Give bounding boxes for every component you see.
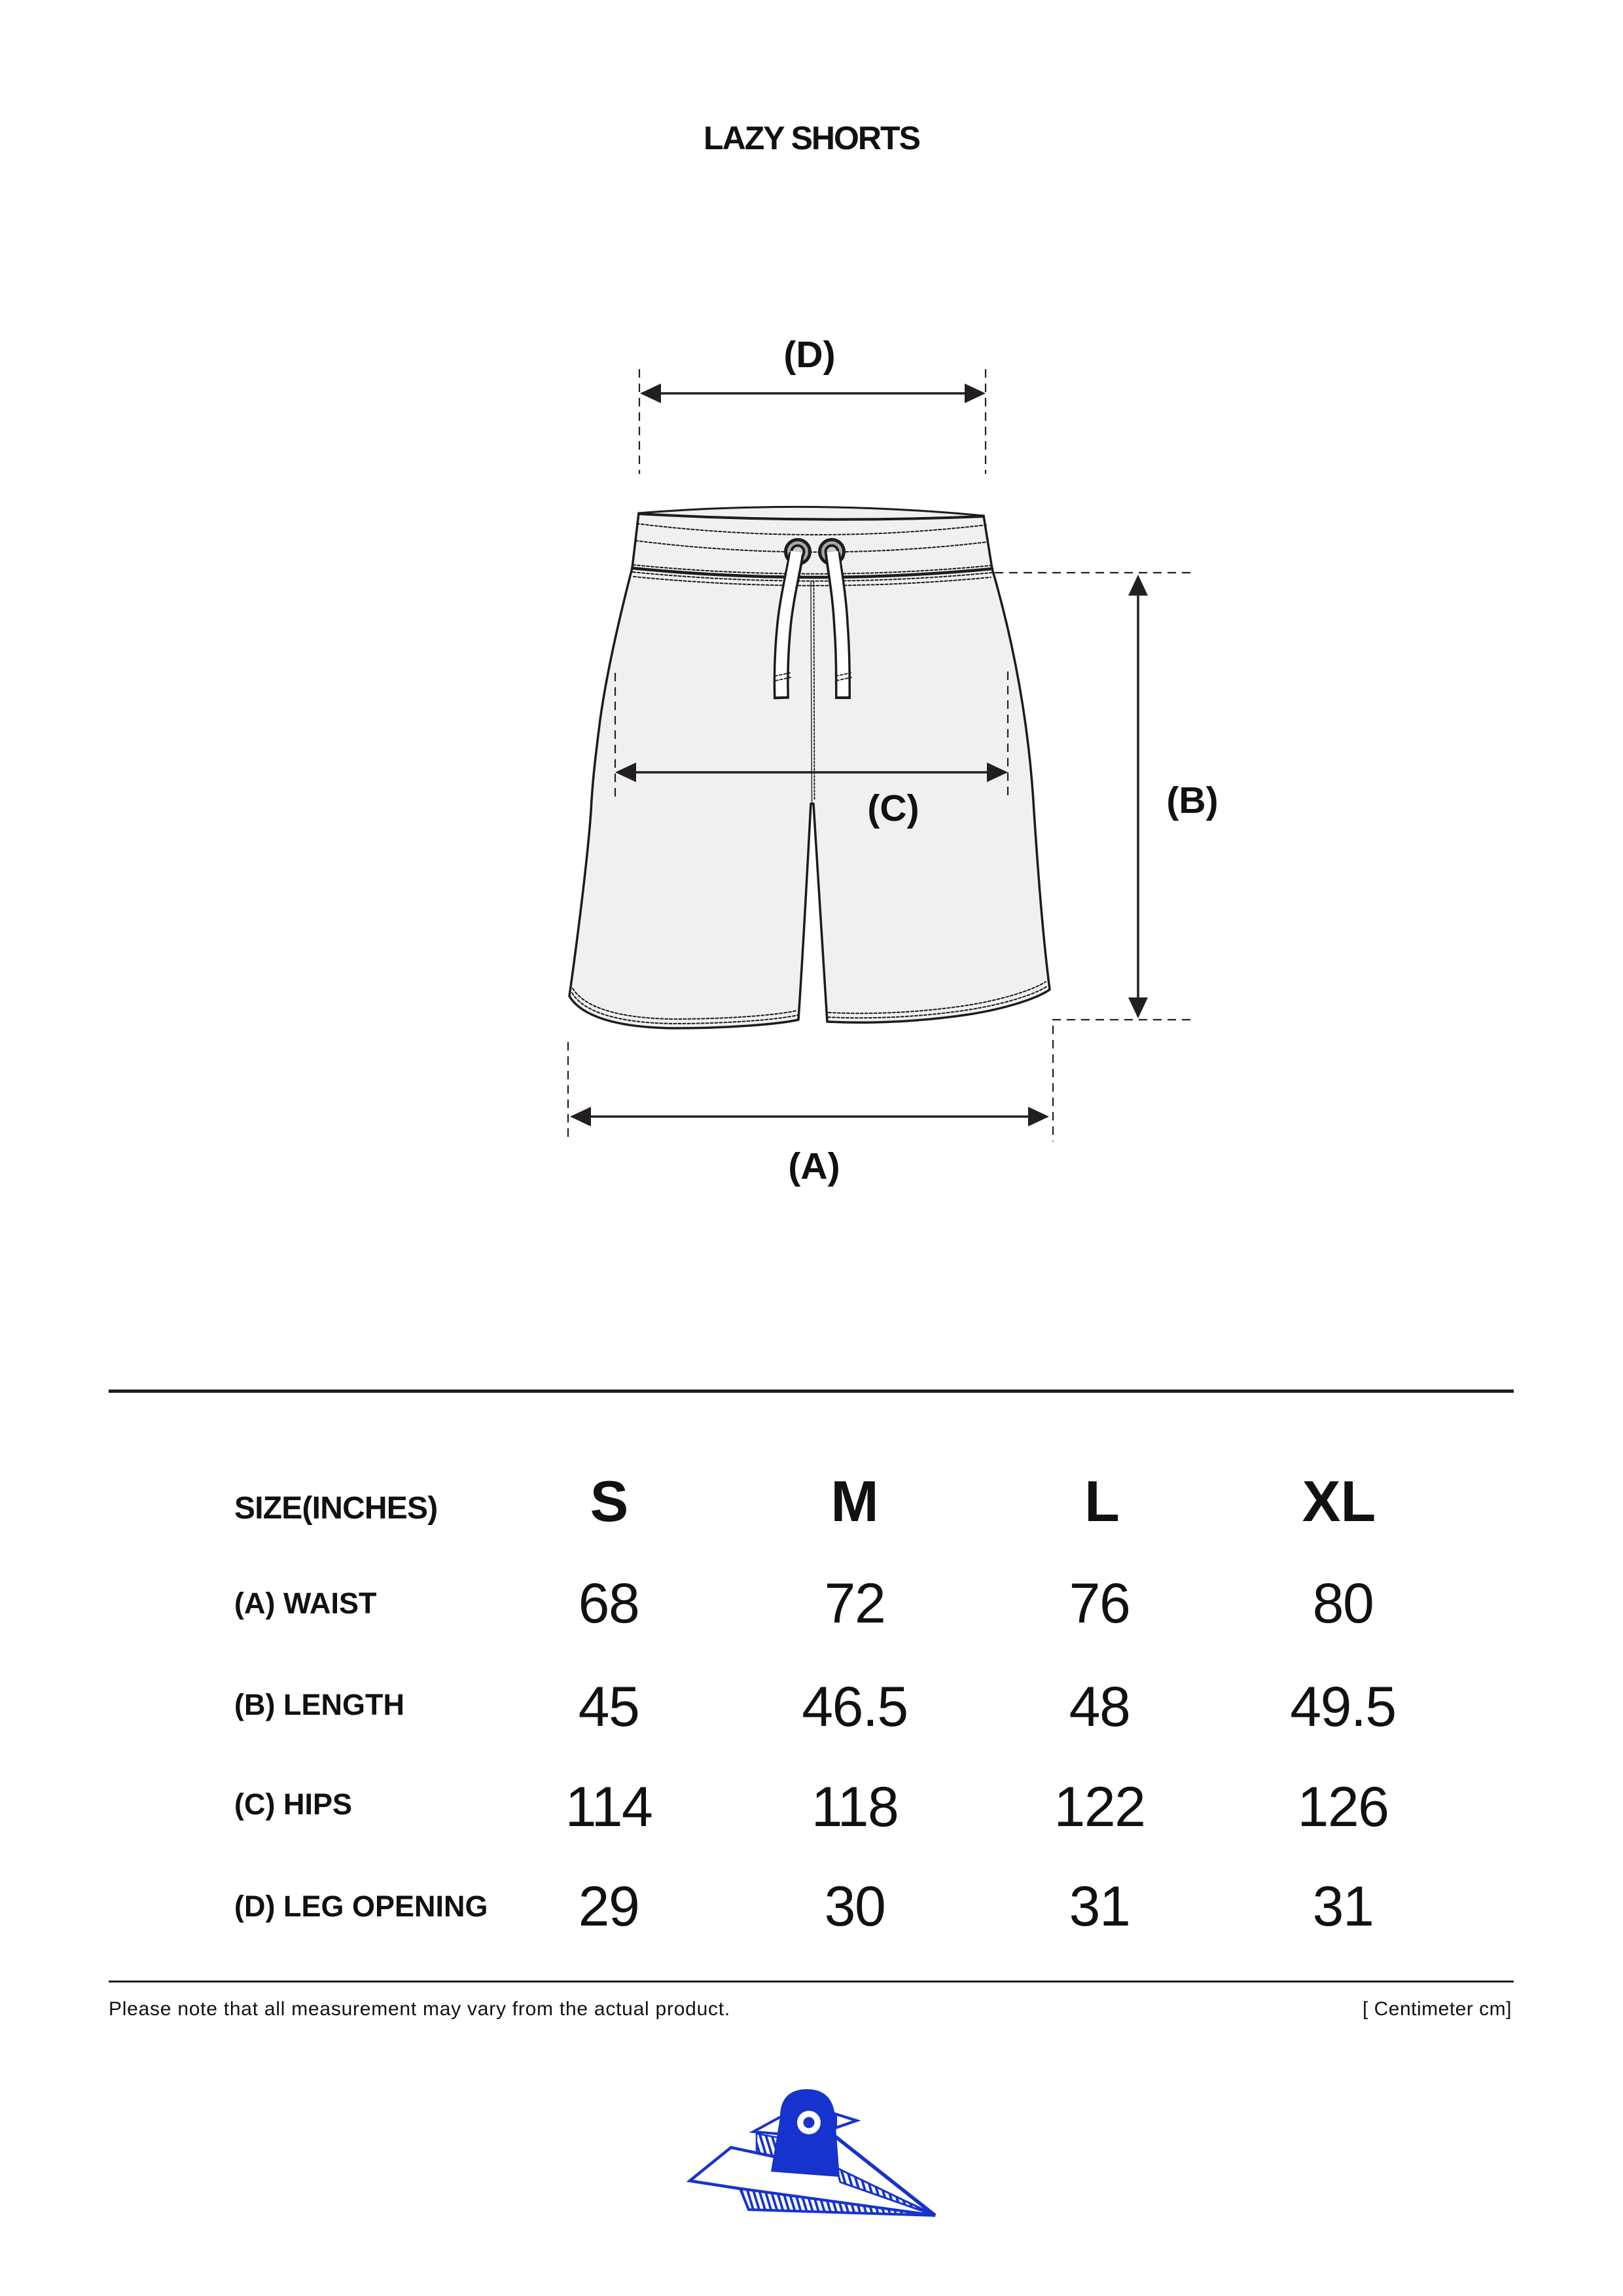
- svg-text:(A) WAIST: (A) WAIST: [234, 1587, 376, 1620]
- svg-text:[ Centimeter cm]: [ Centimeter cm]: [1363, 1998, 1512, 2020]
- svg-text:(C): (C): [867, 787, 919, 829]
- svg-text:(B) LENGTH: (B) LENGTH: [234, 1688, 404, 1721]
- svg-text:Please note that all measureme: Please note that all measurement may var…: [109, 1998, 730, 2020]
- svg-text:(D) LEG OPENING: (D) LEG OPENING: [234, 1890, 488, 1923]
- svg-text:XL: XL: [1302, 1469, 1376, 1534]
- svg-text:(B): (B): [1166, 780, 1218, 821]
- svg-text:30: 30: [825, 1875, 885, 1938]
- svg-text:(D): (D): [783, 334, 835, 376]
- svg-text:29: 29: [579, 1875, 639, 1938]
- svg-text:LAZY SHORTS: LAZY SHORTS: [704, 120, 920, 156]
- svg-text:31: 31: [1313, 1875, 1374, 1938]
- svg-text:46.5: 46.5: [802, 1676, 907, 1738]
- svg-text:68: 68: [579, 1572, 639, 1635]
- svg-text:M: M: [830, 1469, 878, 1534]
- svg-text:49.5: 49.5: [1290, 1676, 1395, 1738]
- svg-text:31: 31: [1069, 1875, 1130, 1938]
- svg-text:118: 118: [811, 1776, 899, 1839]
- svg-text:114: 114: [565, 1776, 652, 1839]
- svg-text:76: 76: [1069, 1572, 1130, 1635]
- svg-text:122: 122: [1054, 1776, 1145, 1839]
- svg-text:126: 126: [1298, 1776, 1389, 1839]
- svg-text:(A): (A): [788, 1145, 840, 1187]
- svg-text:L: L: [1084, 1469, 1120, 1534]
- svg-text:48: 48: [1069, 1676, 1130, 1738]
- svg-text:72: 72: [825, 1572, 885, 1635]
- svg-text:SIZE(INCHES): SIZE(INCHES): [234, 1491, 437, 1526]
- svg-text:(C) HIPS: (C) HIPS: [234, 1787, 352, 1821]
- svg-text:80: 80: [1313, 1572, 1374, 1635]
- svg-text:45: 45: [579, 1676, 639, 1738]
- svg-text:S: S: [590, 1469, 629, 1534]
